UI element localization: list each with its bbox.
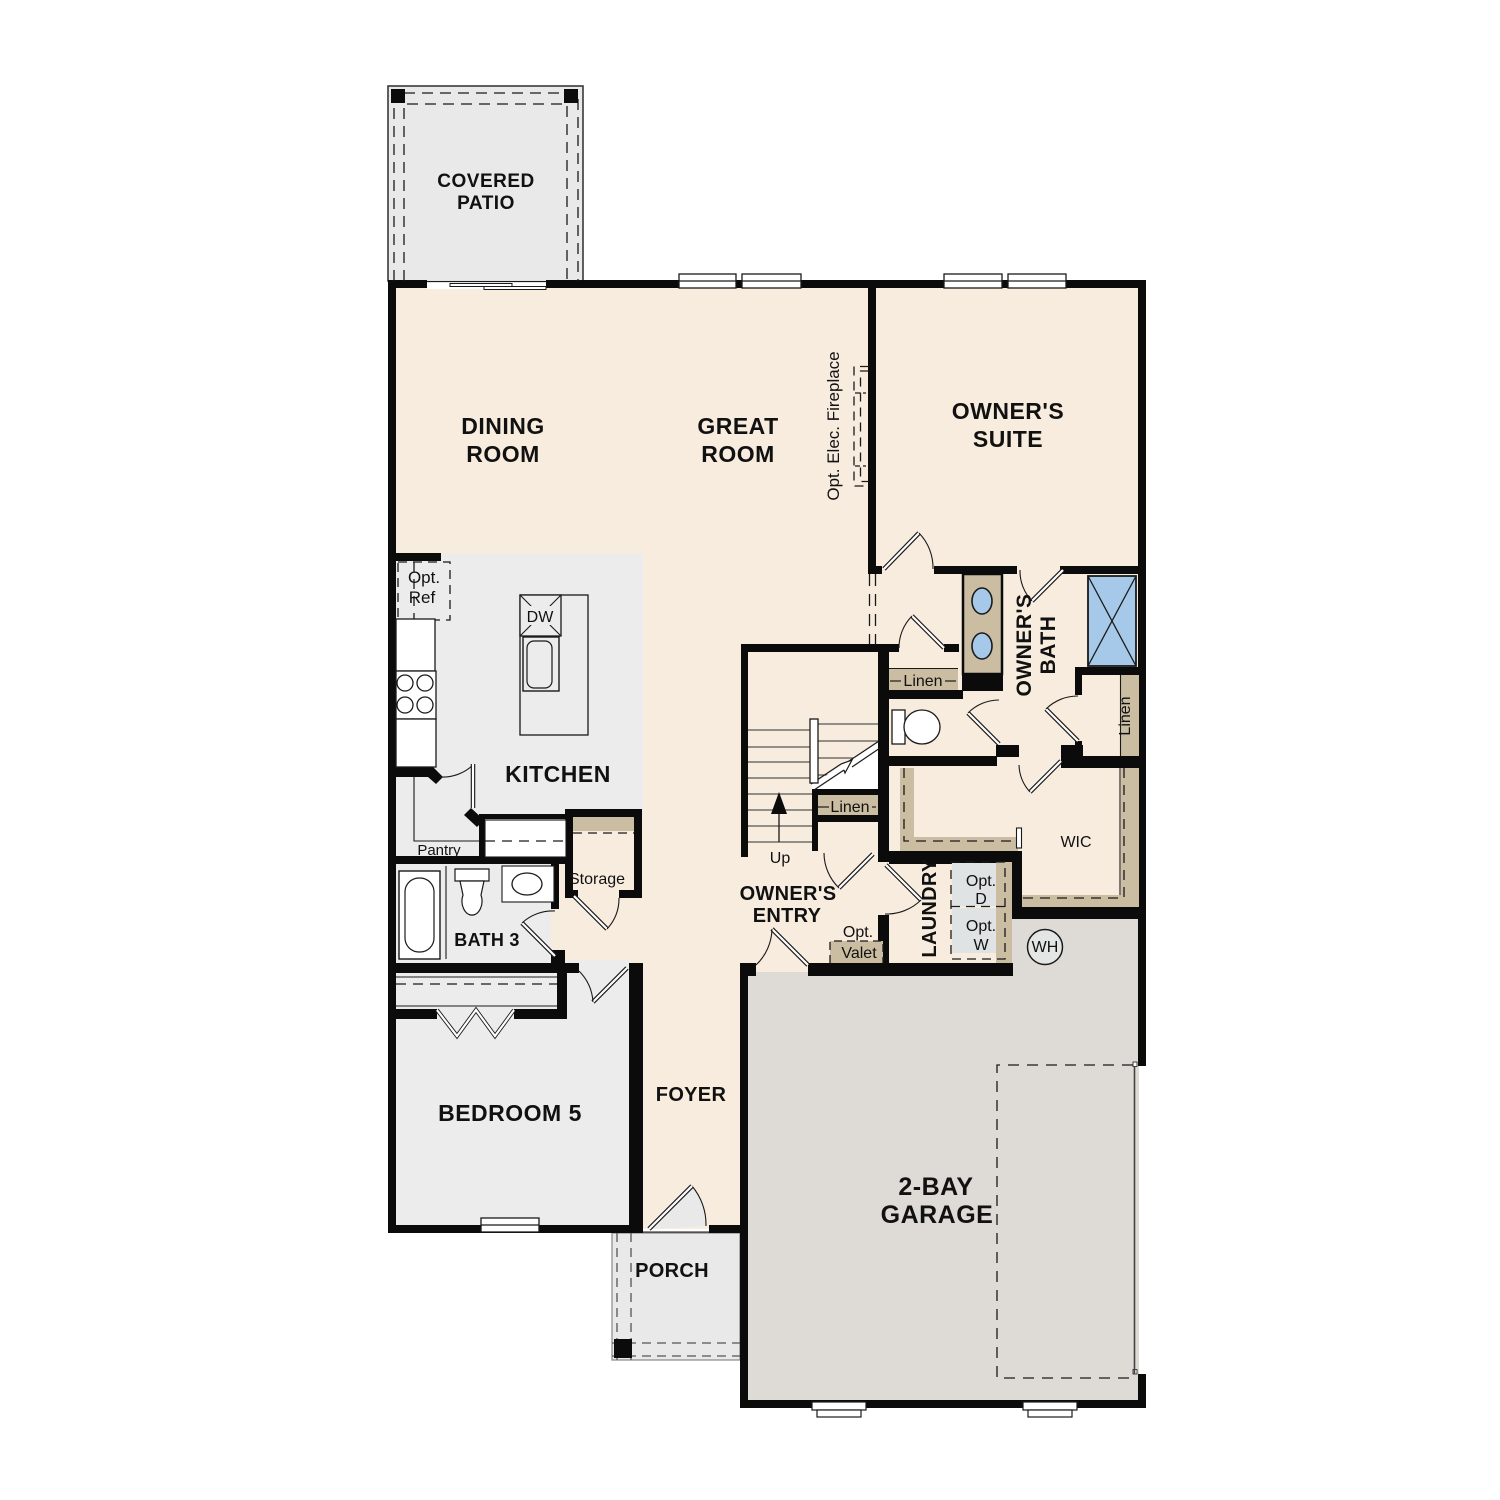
svg-text:Linen: Linen: [903, 673, 942, 690]
svg-text:Ref: Ref: [409, 588, 436, 607]
svg-text:Linen: Linen: [830, 799, 869, 816]
svg-text:OWNER'S: OWNER'S: [952, 398, 1064, 424]
svg-text:Opt.: Opt.: [408, 568, 440, 587]
svg-text:D: D: [975, 891, 987, 908]
svg-text:PORCH: PORCH: [635, 1260, 709, 1282]
svg-text:Storage: Storage: [569, 871, 625, 888]
svg-text:Opt.: Opt.: [966, 873, 996, 890]
svg-text:WH: WH: [1032, 939, 1059, 956]
svg-text:ENTRY: ENTRY: [753, 905, 822, 927]
svg-text:ROOM: ROOM: [466, 441, 540, 467]
svg-text:COVERED: COVERED: [437, 171, 534, 192]
svg-text:2-BAY: 2-BAY: [898, 1173, 973, 1201]
svg-text:Pantry: Pantry: [417, 842, 461, 859]
svg-text:BATH: BATH: [1037, 616, 1060, 675]
svg-text:Up: Up: [770, 850, 791, 867]
svg-text:ROOM: ROOM: [701, 441, 775, 467]
svg-text:SUITE: SUITE: [973, 426, 1043, 452]
svg-text:GREAT: GREAT: [697, 413, 778, 439]
svg-text:BATH 3: BATH 3: [454, 930, 519, 950]
svg-text:Linen: Linen: [1117, 696, 1134, 735]
svg-text:Opt.: Opt.: [843, 924, 873, 941]
svg-text:WIC: WIC: [1060, 834, 1091, 851]
svg-text:OWNER'S: OWNER'S: [740, 883, 837, 905]
svg-text:W: W: [973, 937, 989, 954]
svg-text:LAUNDRY: LAUNDRY: [919, 858, 941, 957]
svg-text:KITCHEN: KITCHEN: [505, 761, 611, 787]
svg-text:Valet: Valet: [841, 945, 877, 962]
svg-text:Opt. Elec. Fireplace: Opt. Elec. Fireplace: [824, 351, 843, 500]
svg-text:BEDROOM 5: BEDROOM 5: [438, 1100, 582, 1126]
svg-text:DW: DW: [527, 609, 555, 626]
svg-text:OWNER'S: OWNER'S: [1013, 594, 1036, 697]
svg-text:GARAGE: GARAGE: [881, 1201, 994, 1229]
svg-text:PATIO: PATIO: [457, 193, 515, 214]
svg-text:FOYER: FOYER: [656, 1084, 727, 1106]
svg-text:Opt.: Opt.: [966, 918, 996, 935]
svg-text:DINING: DINING: [461, 413, 545, 439]
